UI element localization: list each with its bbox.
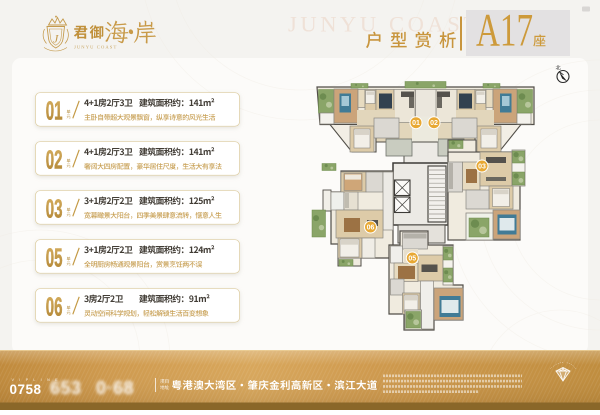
svg-text:0758: 0758 xyxy=(10,382,42,397)
svg-text:03: 03 xyxy=(478,164,486,171)
svg-text:0·68: 0·68 xyxy=(96,378,134,398)
svg-text:01: 01 xyxy=(412,120,420,127)
svg-text:05: 05 xyxy=(408,256,416,263)
svg-text:653: 653 xyxy=(50,378,82,398)
svg-text:05: 05 xyxy=(46,243,63,272)
svg-text:JUNYU COAST: JUNYU COAST xyxy=(74,45,117,50)
svg-text:06: 06 xyxy=(46,292,63,321)
svg-text:01: 01 xyxy=(46,96,63,125)
svg-text:03: 03 xyxy=(46,194,63,223)
svg-text:02: 02 xyxy=(430,120,438,127)
svg-text:J: J xyxy=(53,32,59,46)
svg-text:A17: A17 xyxy=(476,5,533,57)
svg-text:06: 06 xyxy=(367,225,375,232)
svg-text:02: 02 xyxy=(46,145,63,174)
